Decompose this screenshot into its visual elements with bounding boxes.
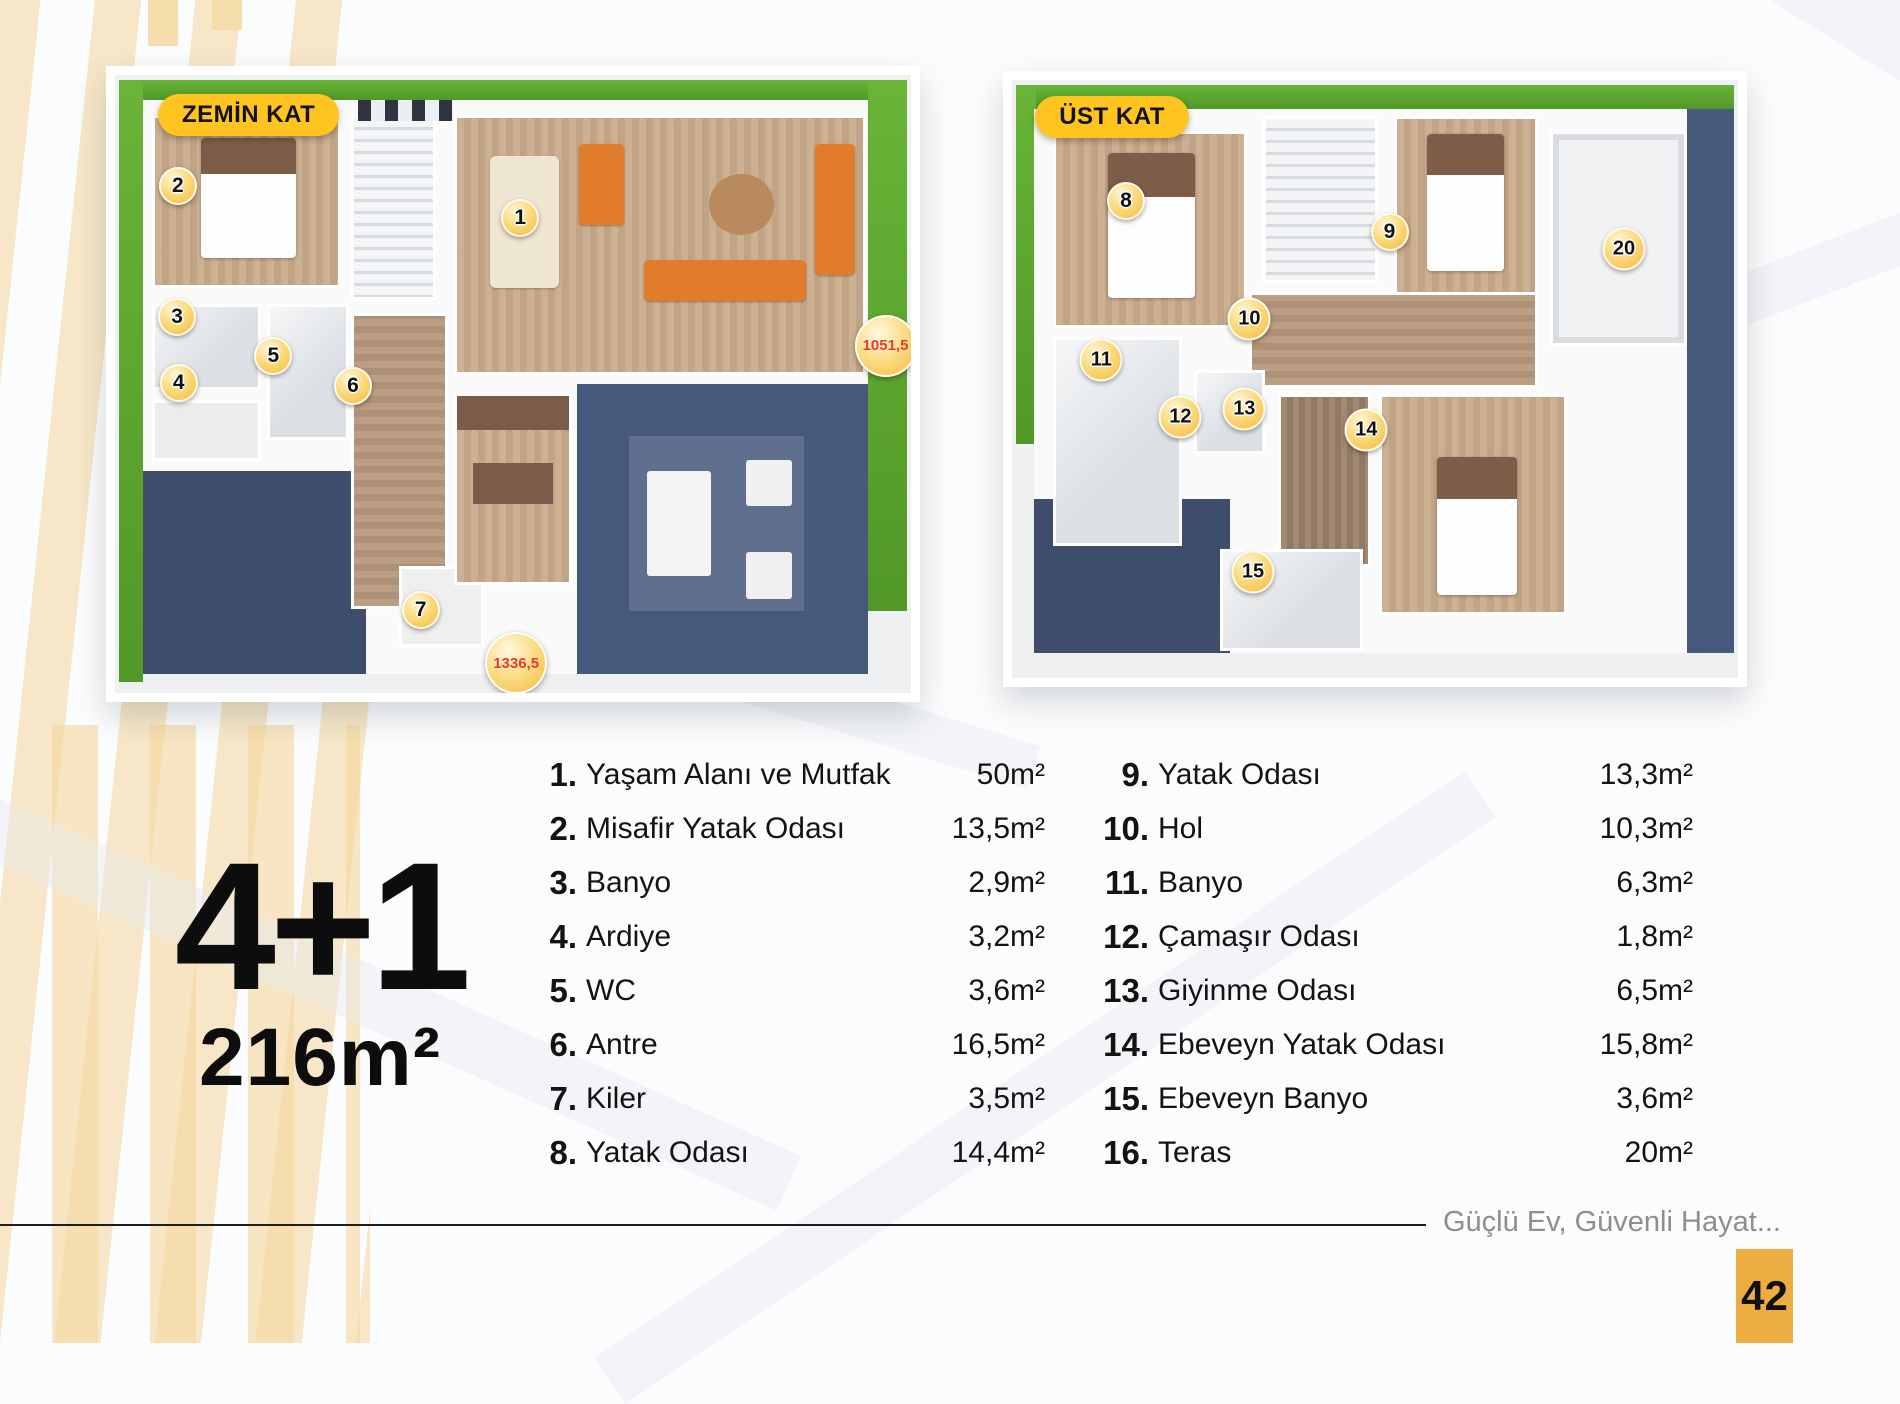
- room-number: 16.: [1065, 1134, 1149, 1172]
- room-name: Yatak Odası: [1158, 758, 1321, 792]
- room-area: 50m²: [977, 758, 1045, 792]
- room-list-item: 2.Misafir Yatak Odası13,5m²: [505, 802, 1045, 856]
- floor-plan-ground-render: ZEMİN KAT 12345671051,51336,5: [115, 75, 911, 693]
- room-list-item: 14.Ebeveyn Yatak Odası15,8m²: [1065, 1018, 1693, 1072]
- room-marker-13: 13: [1223, 388, 1266, 431]
- footer-slogan: Güçlü Ev, Güvenli Hayat...: [1443, 1206, 1781, 1239]
- room-list-upper: 9.Yatak Odası13,3m²10.Hol10,3m²11.Banyo6…: [1065, 748, 1693, 1180]
- room-marker-12: 12: [1159, 396, 1202, 439]
- room-list-item: 7.Kiler3,5m²: [505, 1072, 1045, 1126]
- room-number: 3.: [505, 864, 577, 902]
- room-list-item: 1.Yaşam Alanı ve Mutfak50m²: [505, 748, 1045, 802]
- unit-summary: 4+1 216m²: [105, 835, 535, 1105]
- page-number-badge: 42: [1736, 1249, 1793, 1343]
- room-number: 1.: [505, 756, 577, 794]
- room-area: 10,3m²: [1600, 812, 1693, 846]
- floor-plan-upper-render: ÜST KAT 8910111213141520: [1012, 80, 1738, 678]
- room-marker-5: 5: [254, 337, 292, 375]
- room-number: 2.: [505, 810, 577, 848]
- marker-layer: 8910111213141520: [1012, 80, 1738, 678]
- room-list-item: 9.Yatak Odası13,3m²: [1065, 748, 1693, 802]
- gold-bar-decor: [212, 0, 242, 30]
- room-name: Antre: [586, 1028, 658, 1062]
- room-number: 4.: [505, 918, 577, 956]
- room-marker-20: 20: [1603, 227, 1646, 270]
- floor-label-upper: ÜST KAT: [1035, 96, 1189, 138]
- room-area: 20m²: [1625, 1136, 1693, 1170]
- room-name: Teras: [1158, 1136, 1231, 1170]
- room-area: 14,4m²: [952, 1136, 1045, 1170]
- room-list-item: 5.WC3,6m²: [505, 964, 1045, 1018]
- room-marker-6: 6: [334, 367, 372, 405]
- room-name: Yaşam Alanı ve Mutfak: [586, 758, 891, 792]
- room-area: 3,2m²: [968, 920, 1045, 954]
- footer-divider: [0, 1224, 1426, 1226]
- room-name: Ebeveyn Yatak Odası: [1158, 1028, 1445, 1062]
- room-number: 13.: [1065, 972, 1149, 1010]
- room-area: 3,6m²: [968, 974, 1045, 1008]
- room-number: 12.: [1065, 918, 1149, 956]
- room-area: 15,8m²: [1600, 1028, 1693, 1062]
- measurement-badge: 1336,5: [485, 632, 547, 693]
- room-name: Giyinme Odası: [1158, 974, 1356, 1008]
- room-name: Kiler: [586, 1082, 646, 1116]
- room-list-item: 8.Yatak Odası14,4m²: [505, 1126, 1045, 1180]
- room-marker-15: 15: [1232, 551, 1275, 594]
- room-number: 8.: [505, 1134, 577, 1172]
- room-list-item: 4.Ardiye3,2m²: [505, 910, 1045, 964]
- room-list-ground: 1.Yaşam Alanı ve Mutfak50m²2.Misafir Yat…: [505, 748, 1045, 1180]
- room-name: Misafir Yatak Odası: [586, 812, 845, 846]
- room-list-item: 15.Ebeveyn Banyo3,6m²: [1065, 1072, 1693, 1126]
- floor-label-ground: ZEMİN KAT: [158, 94, 339, 136]
- room-marker-3: 3: [158, 298, 196, 336]
- room-area: 3,6m²: [1616, 1082, 1693, 1116]
- room-name: WC: [586, 974, 636, 1008]
- room-marker-2: 2: [159, 167, 197, 205]
- room-list-item: 13.Giyinme Odası6,5m²: [1065, 964, 1693, 1018]
- room-area: 13,3m²: [1600, 758, 1693, 792]
- floor-plan-ground: ZEMİN KAT 12345671051,51336,5: [106, 66, 920, 702]
- room-number: 6.: [505, 1026, 577, 1064]
- room-list-item: 10.Hol10,3m²: [1065, 802, 1693, 856]
- room-marker-8: 8: [1107, 182, 1145, 220]
- room-number: 11.: [1065, 864, 1149, 902]
- room-list-item: 6.Antre16,5m²: [505, 1018, 1045, 1072]
- room-list-item: 16.Teras20m²: [1065, 1126, 1693, 1180]
- room-area: 6,3m²: [1616, 866, 1693, 900]
- room-marker-14: 14: [1345, 408, 1388, 451]
- marker-layer: 12345671051,51336,5: [115, 75, 911, 693]
- room-number: 9.: [1065, 756, 1149, 794]
- room-name: Hol: [1158, 812, 1203, 846]
- room-number: 14.: [1065, 1026, 1149, 1064]
- room-name: Çamaşır Odası: [1158, 920, 1360, 954]
- room-marker-7: 7: [402, 591, 440, 629]
- room-list-item: 3.Banyo2,9m²: [505, 856, 1045, 910]
- room-number: 5.: [505, 972, 577, 1010]
- room-number: 15.: [1065, 1080, 1149, 1118]
- room-area: 13,5m²: [952, 812, 1045, 846]
- room-marker-11: 11: [1080, 339, 1123, 382]
- room-name: Banyo: [1158, 866, 1243, 900]
- room-area: 3,5m²: [968, 1082, 1045, 1116]
- measurement-badge: 1051,5: [855, 315, 911, 377]
- room-marker-4: 4: [160, 364, 198, 402]
- gold-bar-decor: [148, 0, 178, 46]
- room-area: 6,5m²: [1616, 974, 1693, 1008]
- room-name: Ardiye: [586, 920, 671, 954]
- room-marker-1: 1: [501, 199, 539, 237]
- room-list-item: 11.Banyo6,3m²: [1065, 856, 1693, 910]
- room-marker-9: 9: [1371, 213, 1409, 251]
- floor-plan-upper: ÜST KAT 8910111213141520: [1003, 71, 1747, 687]
- room-name: Yatak Odası: [586, 1136, 749, 1170]
- room-marker-10: 10: [1228, 298, 1271, 341]
- room-name: Banyo: [586, 866, 671, 900]
- unit-configuration: 4+1: [105, 835, 535, 1017]
- room-number: 7.: [505, 1080, 577, 1118]
- room-area: 2,9m²: [968, 866, 1045, 900]
- room-area: 1,8m²: [1616, 920, 1693, 954]
- room-list-item: 12.Çamaşır Odası1,8m²: [1065, 910, 1693, 964]
- unit-total-area: 216m²: [105, 1011, 535, 1105]
- room-name: Ebeveyn Banyo: [1158, 1082, 1368, 1116]
- room-number: 10.: [1065, 810, 1149, 848]
- room-area: 16,5m²: [952, 1028, 1045, 1062]
